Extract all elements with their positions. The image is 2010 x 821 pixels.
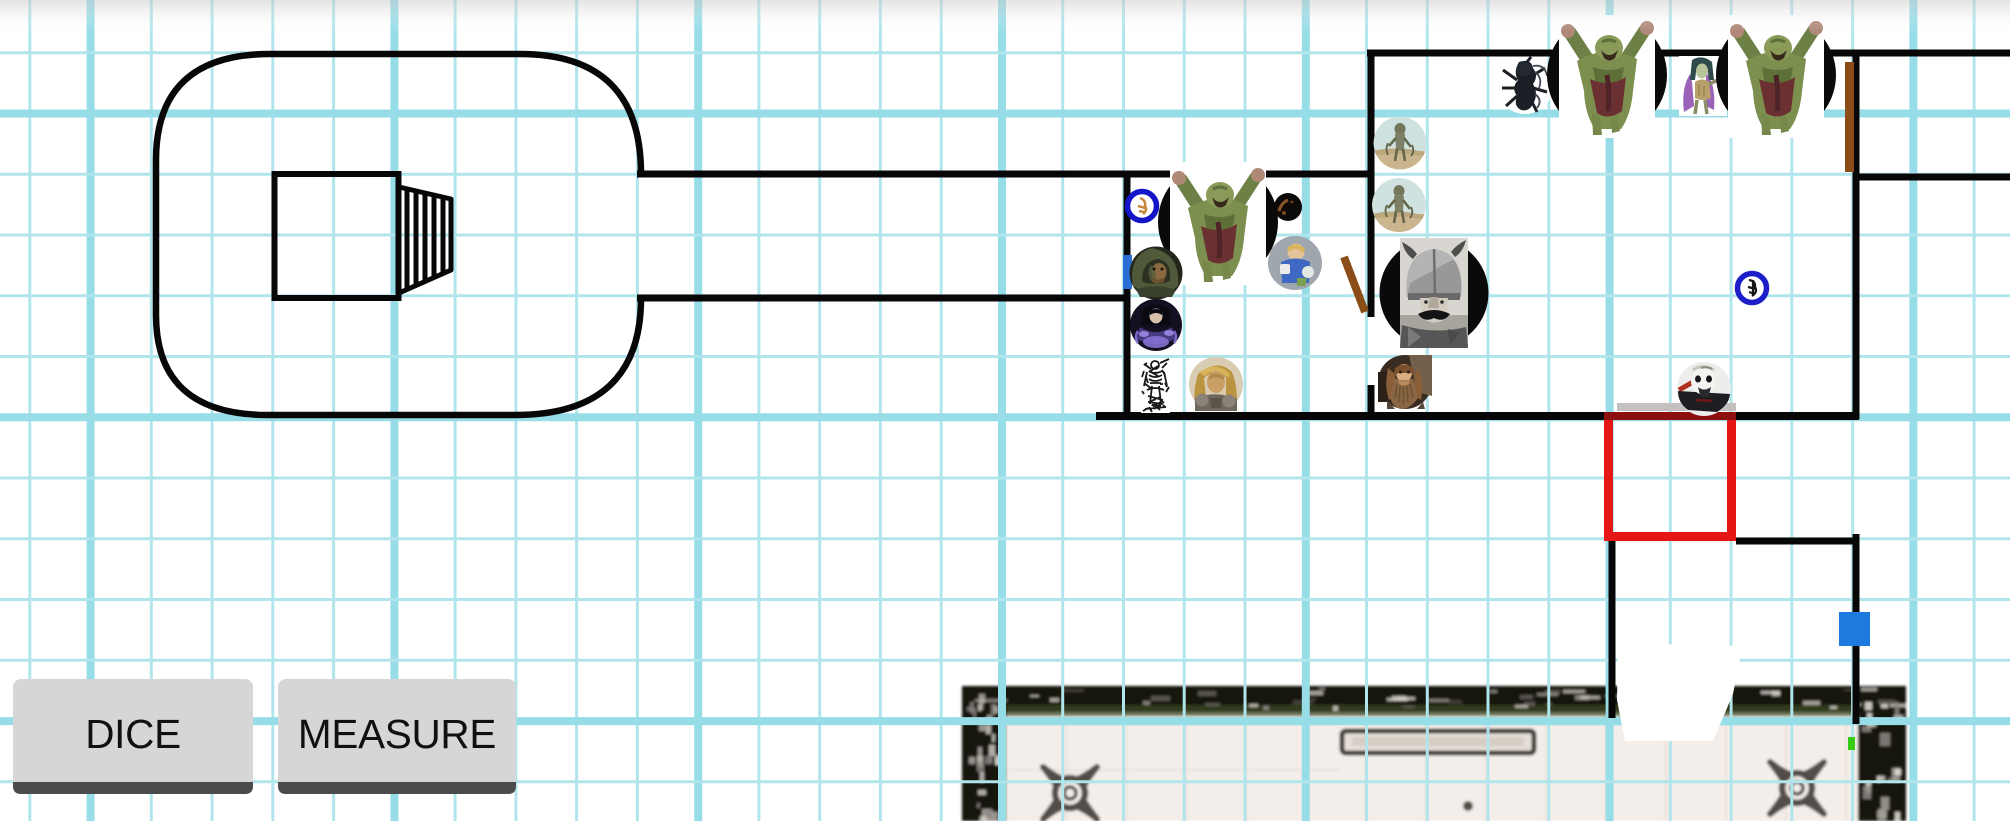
svg-text:MEASURE: MEASURE [298, 711, 496, 757]
svg-text:DICE: DICE [85, 711, 181, 757]
